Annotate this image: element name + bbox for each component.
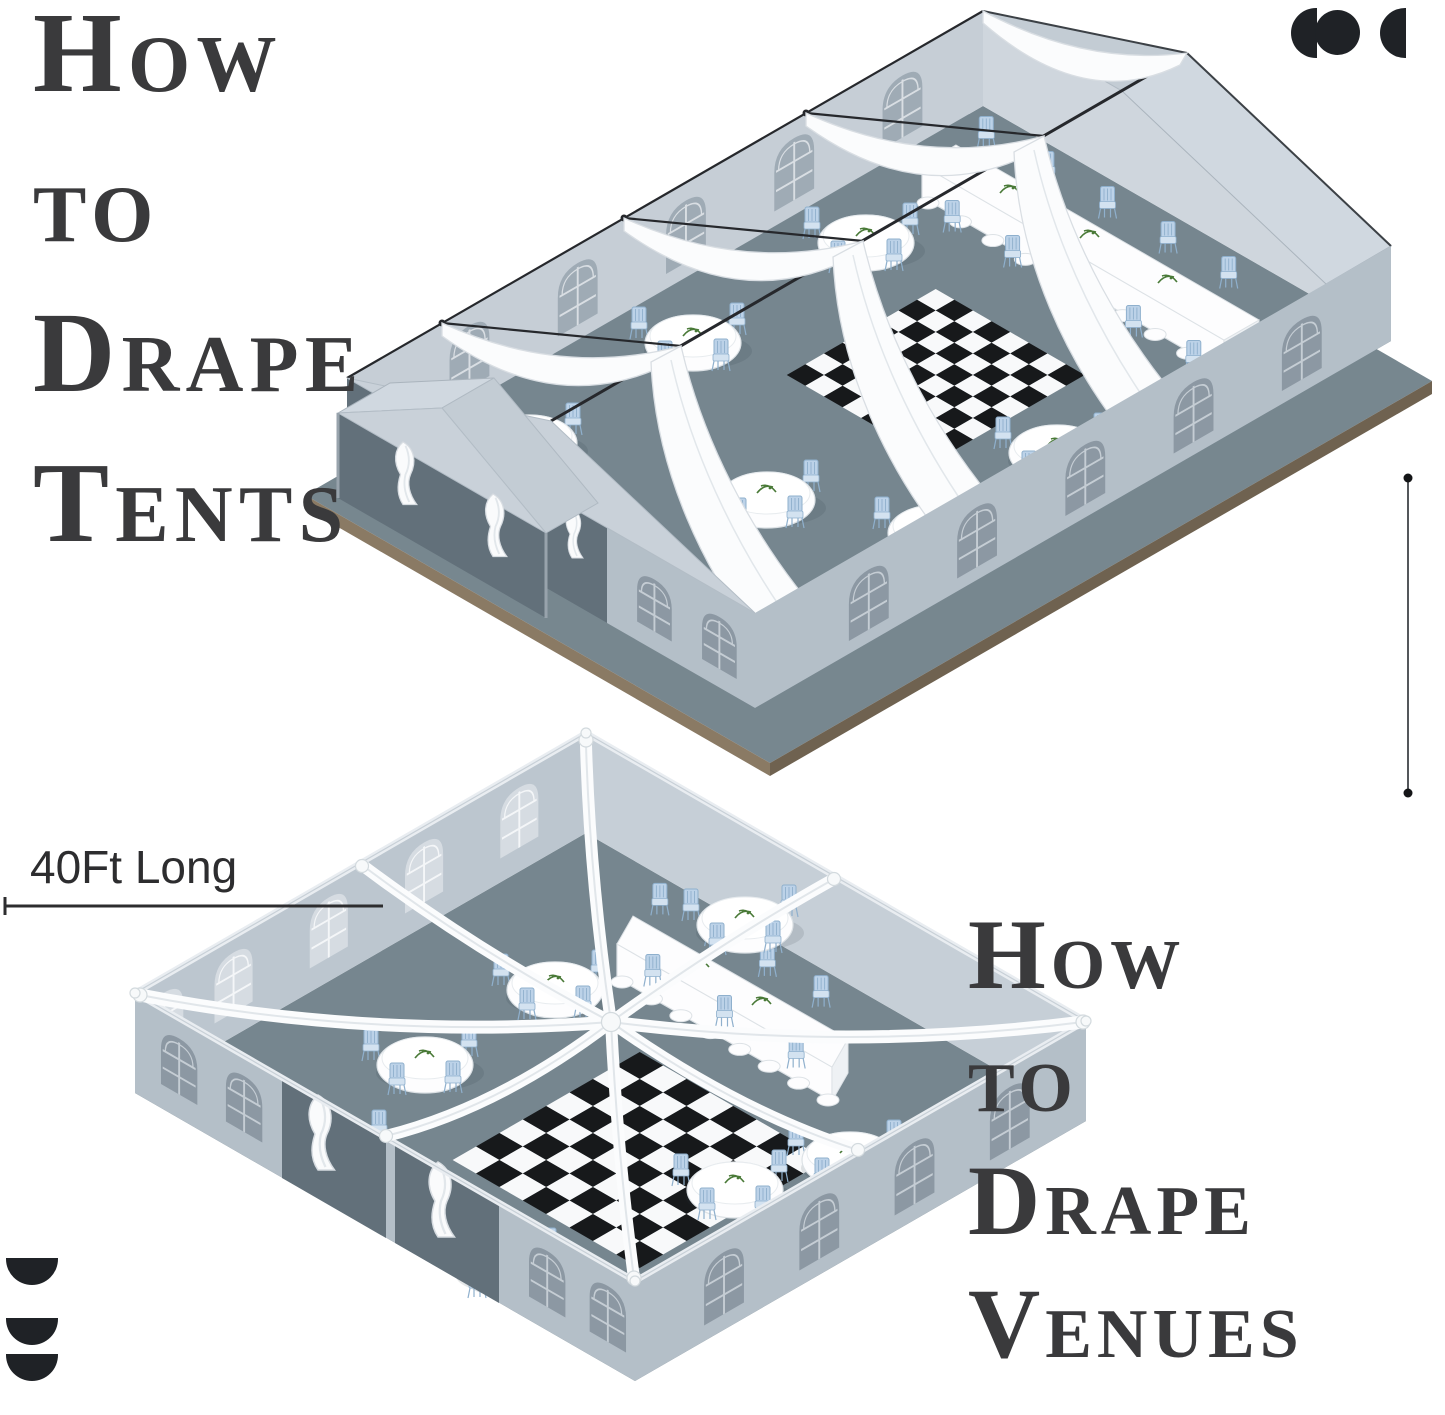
- title-how-to-drape-venues: How to Drape Venues: [968, 893, 1304, 1385]
- logo-half-disc-icon: [6, 1258, 58, 1285]
- poster-canvas: How to Drape Tents How to Drape Venues 4…: [0, 0, 1445, 1415]
- title-left-line-4: Tents: [33, 428, 364, 578]
- title-how-to-drape-tents: How to Drape Tents: [33, 0, 364, 578]
- title-right-line-4: Venues: [968, 1262, 1304, 1385]
- logo-half-disc-icon: [1380, 8, 1406, 58]
- tent-illustration: [305, 11, 1432, 776]
- length-dimension-label: 40Ft Long: [30, 840, 237, 894]
- brand-mark-circles-icon: [1291, 8, 1421, 60]
- title-right-line-3: Drape: [968, 1139, 1304, 1262]
- brand-mark-half-discs-icon: [6, 1258, 66, 1398]
- logo-circle-icon: [1315, 10, 1360, 55]
- title-right-line-2: to: [968, 1016, 1304, 1139]
- title-right-line-1: How: [968, 893, 1304, 1016]
- venue-illustration: [130, 728, 1091, 1381]
- height-measurement-line: [1404, 474, 1413, 798]
- title-left-line-1: How: [33, 0, 364, 128]
- title-left-line-2: to: [33, 128, 364, 278]
- title-left-line-3: Drape: [33, 278, 364, 428]
- logo-half-disc-icon: [6, 1318, 58, 1345]
- logo-half-disc-icon: [1291, 8, 1317, 58]
- logo-half-disc-icon: [6, 1354, 58, 1381]
